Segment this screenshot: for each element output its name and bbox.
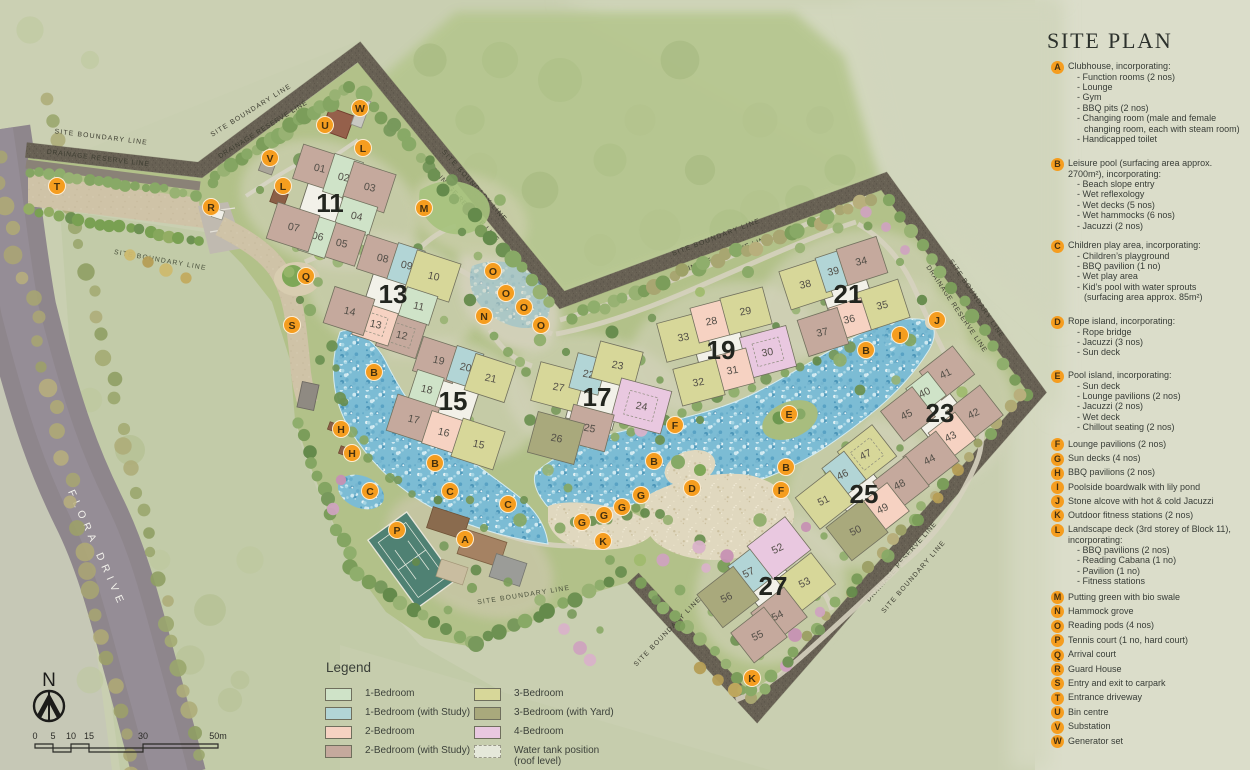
- svg-text:O: O: [520, 302, 528, 314]
- svg-text:W: W: [355, 103, 365, 115]
- svg-text:13: 13: [379, 279, 408, 309]
- svg-text:M: M: [420, 203, 429, 215]
- svg-text:F: F: [778, 485, 785, 497]
- svg-text:25: 25: [850, 479, 879, 509]
- svg-text:H: H: [348, 448, 356, 460]
- svg-text:U: U: [321, 120, 329, 132]
- svg-text:R: R: [207, 202, 215, 214]
- svg-text:17: 17: [583, 382, 612, 412]
- svg-text:30: 30: [761, 346, 775, 360]
- svg-text:G: G: [600, 510, 608, 522]
- svg-text:K: K: [748, 673, 756, 685]
- svg-text:19: 19: [707, 335, 736, 365]
- svg-text:A: A: [461, 534, 469, 546]
- svg-text:50m: 50m: [209, 731, 227, 741]
- svg-text:B: B: [650, 456, 658, 468]
- svg-text:0: 0: [32, 731, 37, 741]
- svg-text:24: 24: [635, 400, 649, 414]
- svg-text:V: V: [266, 153, 273, 165]
- svg-text:O: O: [502, 288, 510, 300]
- svg-text:33: 33: [677, 331, 691, 345]
- svg-text:C: C: [446, 486, 454, 498]
- svg-text:G: G: [618, 502, 626, 514]
- svg-text:11: 11: [316, 188, 344, 218]
- svg-text:15: 15: [84, 731, 94, 741]
- svg-text:G: G: [637, 490, 645, 502]
- svg-text:B: B: [782, 462, 790, 474]
- svg-text:E: E: [785, 409, 792, 421]
- svg-text:27: 27: [759, 571, 788, 601]
- svg-text:B: B: [370, 367, 378, 379]
- svg-text:P: P: [393, 525, 400, 537]
- svg-text:O: O: [537, 320, 545, 332]
- svg-text:29: 29: [739, 305, 753, 319]
- svg-text:10: 10: [66, 731, 76, 741]
- svg-text:D: D: [688, 483, 696, 495]
- svg-text:B: B: [431, 458, 439, 470]
- svg-text:O: O: [489, 266, 497, 278]
- svg-text:K: K: [599, 536, 607, 548]
- svg-text:30: 30: [138, 731, 148, 741]
- svg-text:23: 23: [926, 398, 955, 428]
- svg-text:F: F: [672, 420, 679, 432]
- svg-text:T: T: [54, 181, 61, 193]
- svg-text:5: 5: [50, 731, 55, 741]
- svg-text:32: 32: [692, 376, 706, 390]
- svg-text:27: 27: [552, 381, 566, 395]
- svg-text:C: C: [366, 486, 374, 498]
- svg-text:N: N: [42, 670, 56, 691]
- svg-text:N: N: [480, 311, 488, 323]
- svg-text:28: 28: [705, 315, 719, 329]
- svg-text:15: 15: [439, 386, 468, 416]
- svg-text:23: 23: [611, 359, 625, 373]
- svg-text:C: C: [504, 499, 512, 511]
- svg-text:B: B: [862, 345, 870, 357]
- svg-text:L: L: [360, 143, 367, 155]
- svg-text:L: L: [280, 181, 287, 193]
- svg-text:G: G: [578, 517, 586, 529]
- svg-text:J: J: [934, 315, 940, 327]
- svg-text:31: 31: [726, 364, 740, 378]
- svg-text:S: S: [288, 320, 295, 332]
- svg-text:21: 21: [834, 279, 863, 309]
- svg-text:Q: Q: [302, 271, 310, 283]
- svg-text:26: 26: [550, 432, 564, 446]
- svg-text:H: H: [337, 424, 345, 436]
- svg-text:I: I: [899, 330, 902, 342]
